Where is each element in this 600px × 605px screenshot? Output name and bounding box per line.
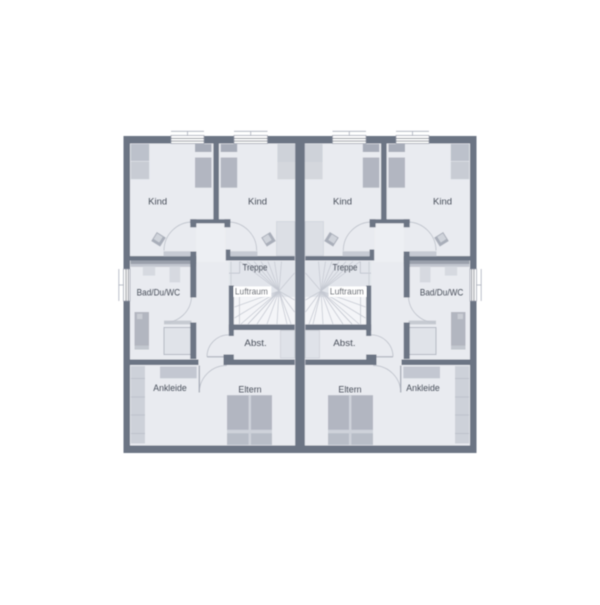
svg-text:Eltern: Eltern xyxy=(338,384,361,394)
svg-text:Luftraum: Luftraum xyxy=(330,287,364,297)
svg-text:Ankleide: Ankleide xyxy=(406,383,440,393)
svg-text:Treppe: Treppe xyxy=(243,262,268,272)
svg-text:Bad/Du/WC: Bad/Du/WC xyxy=(420,287,464,297)
svg-text:Kind: Kind xyxy=(333,196,352,206)
svg-text:Ankleide: Ankleide xyxy=(153,383,187,393)
svg-text:Kind: Kind xyxy=(433,196,452,206)
svg-text:Kind: Kind xyxy=(148,196,167,206)
svg-text:Bad/Du/WC: Bad/Du/WC xyxy=(137,287,181,297)
svg-text:Treppe: Treppe xyxy=(333,262,358,272)
svg-text:Abst.: Abst. xyxy=(333,338,355,348)
svg-text:Kind: Kind xyxy=(248,196,267,206)
svg-text:Eltern: Eltern xyxy=(238,384,261,394)
svg-text:Abst.: Abst. xyxy=(244,338,266,348)
svg-text:Luftraum: Luftraum xyxy=(235,287,268,297)
